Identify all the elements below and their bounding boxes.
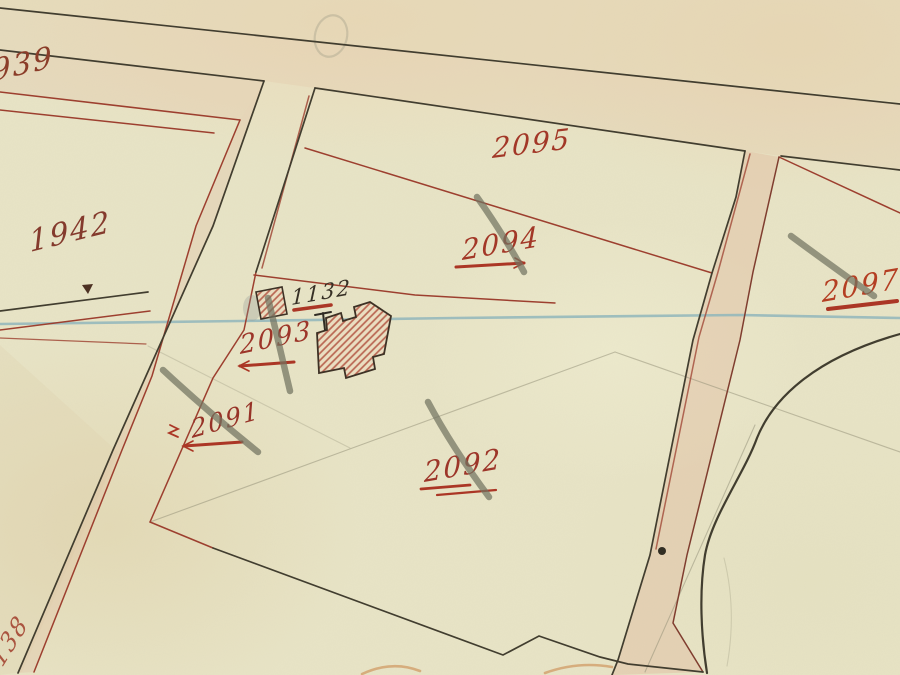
paper-grain-overlay: [0, 0, 900, 675]
map-drawing: 1939 1942 2095 2094 2093 1132 2091 2092 …: [0, 0, 900, 675]
cadastral-map-canvas: 1939 1942 2095 2094 2093 1132 2091 2092 …: [0, 0, 900, 675]
